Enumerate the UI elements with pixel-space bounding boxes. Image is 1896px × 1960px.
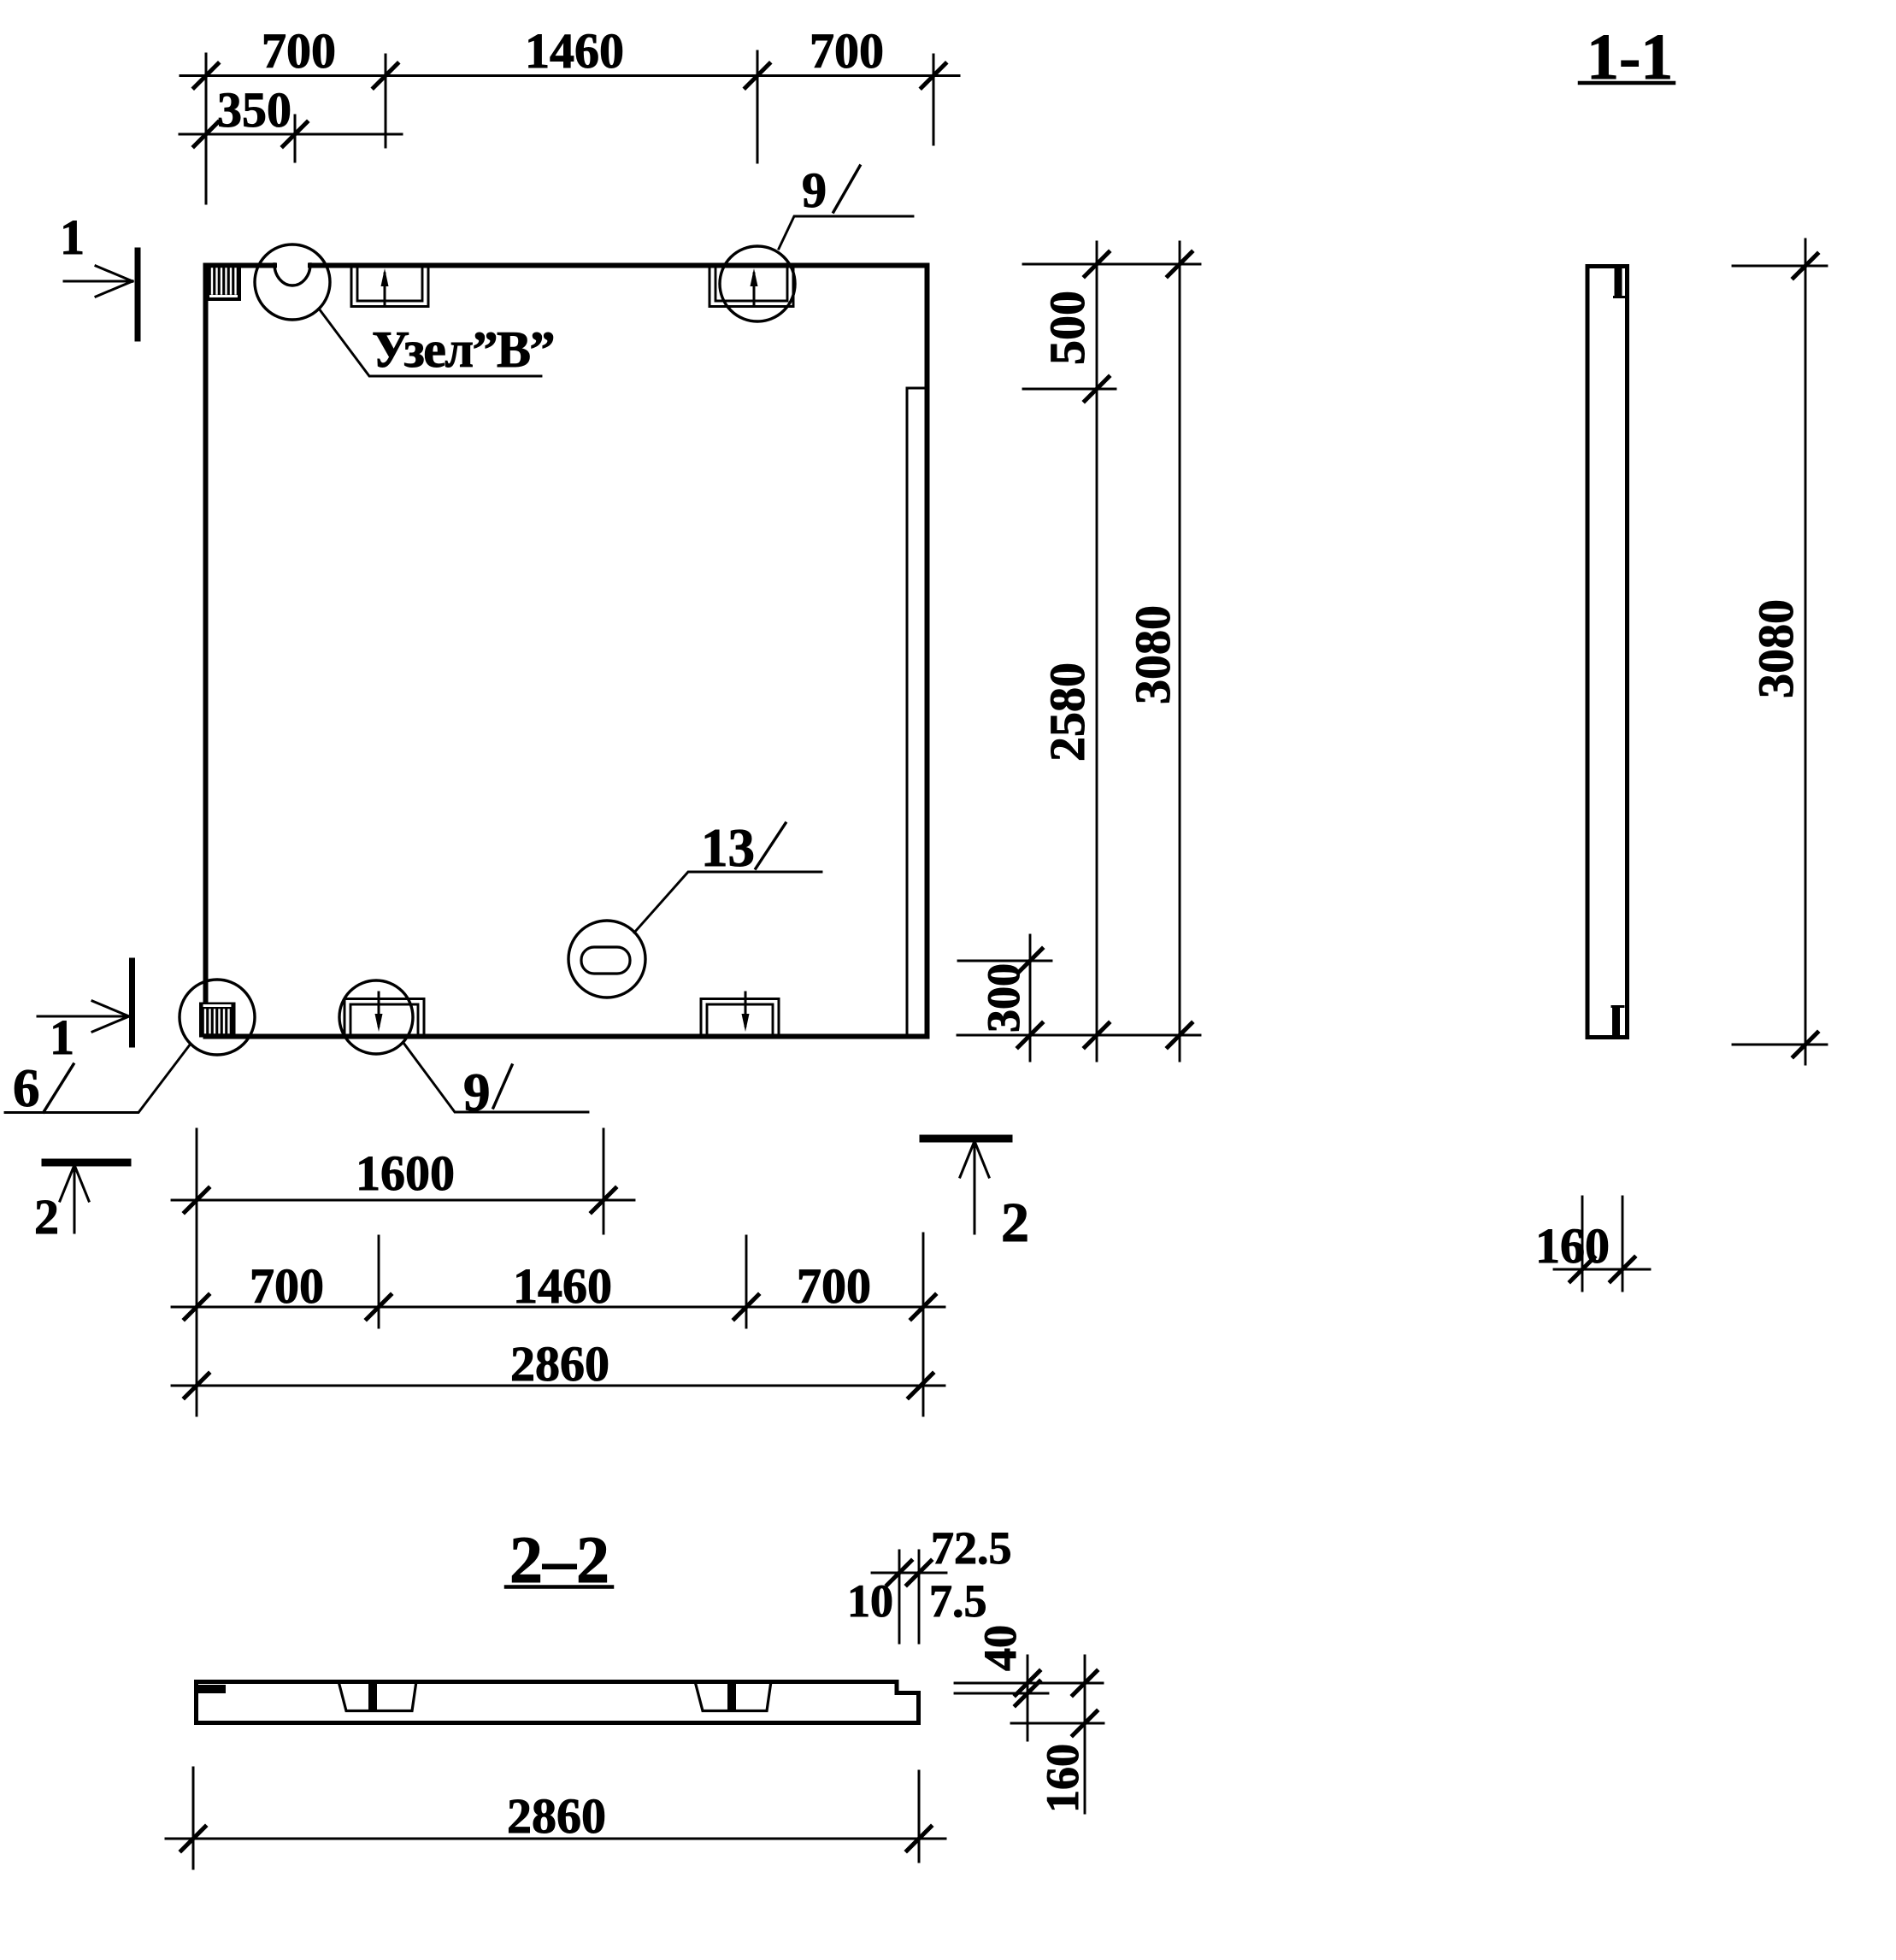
svg-text:1: 1	[50, 1009, 74, 1065]
svg-text:7.5: 7.5	[929, 1575, 987, 1627]
svg-text:700: 700	[250, 1258, 324, 1314]
svg-text:10: 10	[847, 1575, 893, 1627]
svg-text:40: 40	[974, 1625, 1026, 1671]
svg-text:700: 700	[797, 1258, 871, 1314]
svg-text:300: 300	[978, 963, 1029, 1033]
svg-text:72.5: 72.5	[931, 1522, 1012, 1574]
svg-text:3080: 3080	[1748, 599, 1804, 698]
svg-text:3080: 3080	[1125, 605, 1181, 704]
svg-text:2580: 2580	[1039, 662, 1095, 762]
svg-text:2: 2	[34, 1189, 59, 1245]
svg-text:9: 9	[802, 162, 827, 218]
svg-text:350: 350	[217, 82, 291, 138]
svg-text:2860: 2860	[510, 1336, 609, 1392]
svg-text:1600: 1600	[356, 1145, 455, 1201]
svg-text:9: 9	[463, 1062, 491, 1122]
svg-text:700: 700	[810, 23, 884, 79]
svg-text:2: 2	[1001, 1192, 1029, 1254]
svg-text:160: 160	[1535, 1218, 1610, 1274]
svg-text:1460: 1460	[525, 23, 624, 79]
svg-text:500: 500	[1039, 291, 1095, 365]
svg-text:1460: 1460	[513, 1258, 612, 1314]
svg-text:13: 13	[701, 818, 755, 878]
svg-text:1: 1	[60, 209, 85, 265]
svg-text:160: 160	[1037, 1744, 1088, 1813]
svg-text:2860: 2860	[507, 1788, 606, 1844]
svg-text:Узел”В”: Узел”В”	[372, 321, 554, 378]
svg-text:6: 6	[13, 1058, 40, 1118]
svg-text:700: 700	[262, 23, 336, 79]
